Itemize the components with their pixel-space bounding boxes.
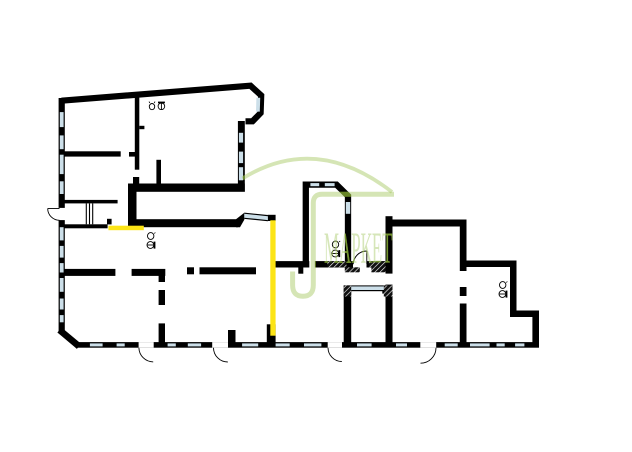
svg-text:МАРКЕТ: МАРКЕТ	[324, 224, 393, 273]
